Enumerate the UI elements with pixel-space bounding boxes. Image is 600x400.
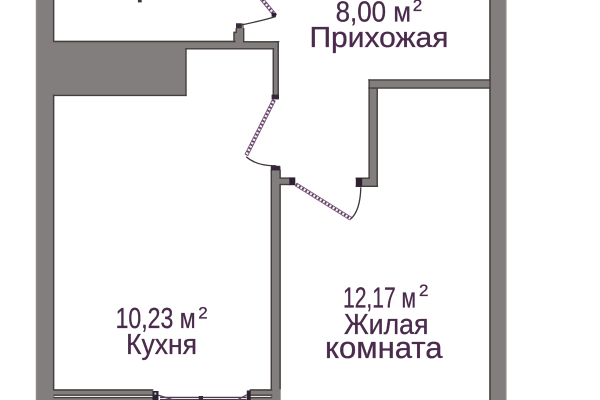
svg-text:Прихожая: Прихожая <box>310 22 449 54</box>
svg-text:2: 2 <box>198 304 207 323</box>
svg-text:Кухня: Кухня <box>126 329 197 361</box>
svg-text:2: 2 <box>413 0 422 15</box>
svg-text:комната: комната <box>325 330 443 365</box>
svg-text:2: 2 <box>419 281 428 300</box>
